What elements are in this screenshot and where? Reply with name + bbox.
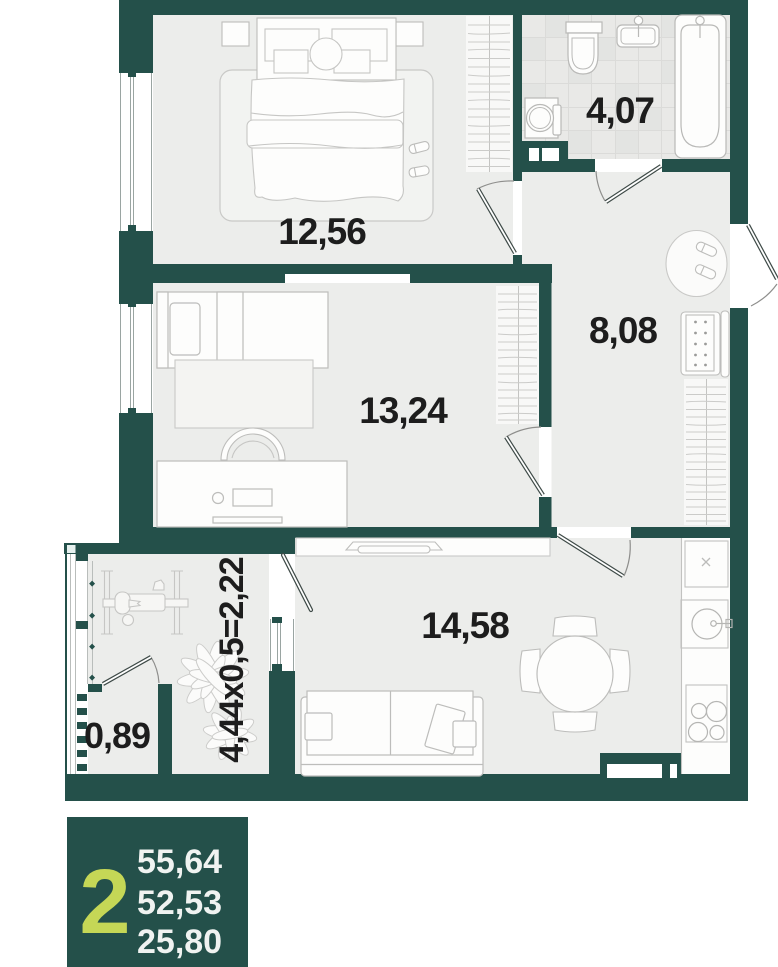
svg-text:55,64: 55,64: [137, 843, 222, 881]
svg-text:13,24: 13,24: [359, 390, 448, 431]
svg-text:8,08: 8,08: [589, 310, 657, 351]
svg-text:4,44x0,5=2,22: 4,44x0,5=2,22: [213, 557, 251, 762]
svg-text:4,07: 4,07: [586, 90, 654, 131]
svg-text:12,56: 12,56: [278, 211, 366, 252]
svg-text:14,58: 14,58: [421, 605, 509, 646]
svg-text:25,80: 25,80: [137, 923, 222, 961]
svg-text:52,53: 52,53: [137, 884, 222, 922]
svg-text:2: 2: [79, 851, 130, 953]
svg-text:0,89: 0,89: [84, 715, 150, 756]
